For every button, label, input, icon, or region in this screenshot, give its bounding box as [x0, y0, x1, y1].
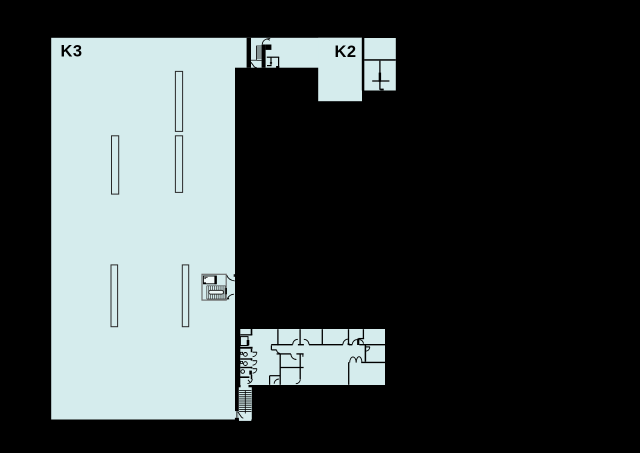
svg-text:K2: K2 [335, 43, 357, 61]
svg-text:K3: K3 [61, 43, 83, 61]
